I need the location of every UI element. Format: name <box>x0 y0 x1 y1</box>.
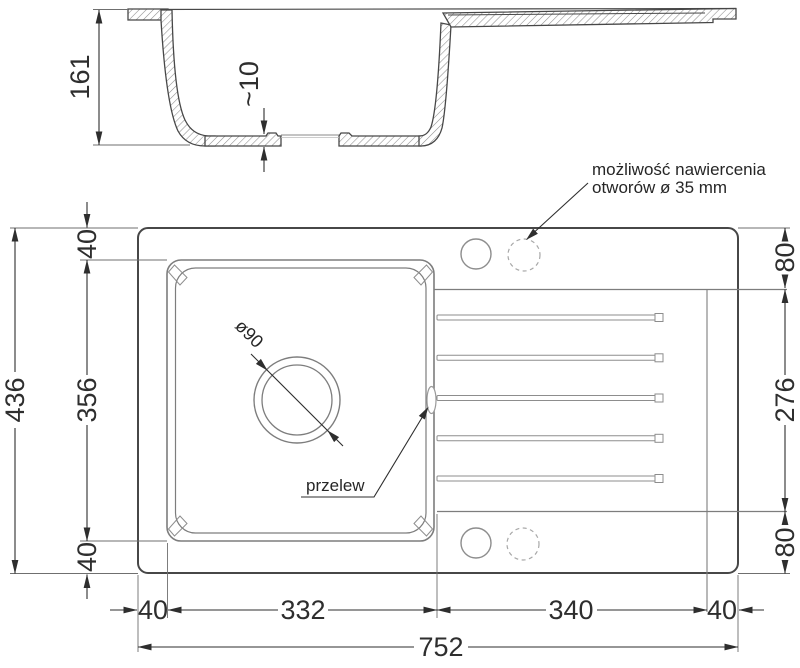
section-left-wall <box>161 10 215 146</box>
groove <box>437 315 658 320</box>
section-bottom-right <box>339 133 421 146</box>
groove-end-cap <box>655 475 663 483</box>
dim-label-right-40: 40 <box>707 595 737 625</box>
technical-drawing-page: 161 ~10 <box>0 0 800 668</box>
section-view: 161 ~10 <box>65 9 736 173</box>
dim-label-356: 356 <box>72 377 102 422</box>
dim-label-436: 436 <box>0 377 30 422</box>
note-line-2: otworów ø 35 mm <box>592 178 727 197</box>
dim-label-752: 752 <box>418 632 463 662</box>
dim-label-80-bottom: 80 <box>770 527 800 557</box>
dim-total-length: 752 <box>138 632 738 662</box>
note-line-1: możliwość nawiercenia <box>592 160 766 179</box>
dim-right-vertical: 80 276 80 <box>770 228 800 574</box>
sink-technical-drawing: 161 ~10 <box>0 0 800 668</box>
dim-label-161: 161 <box>65 54 95 99</box>
dim-label-bottom-40: 40 <box>72 542 102 572</box>
groove <box>437 396 658 401</box>
groove-end-cap <box>655 314 663 322</box>
dim-bowl-vertical: 40 356 40 <box>72 202 102 599</box>
dim-label-80-top: 80 <box>770 242 800 272</box>
section-right-wall <box>419 23 451 146</box>
dim-total-width: 436 <box>0 228 30 574</box>
dim-label-340: 340 <box>548 595 593 625</box>
groove-end-cap <box>655 394 663 402</box>
dim-label-top-40: 40 <box>72 229 102 259</box>
dim-label-10: ~10 <box>234 61 264 107</box>
dim-label-332: 332 <box>280 595 325 625</box>
section-drainer <box>443 9 736 28</box>
dim-label-left-40: 40 <box>138 595 168 625</box>
dim-bottom-thickness: ~10 <box>234 61 264 172</box>
groove-end-cap <box>655 354 663 362</box>
dim-label-276: 276 <box>770 377 800 422</box>
groove-end-cap <box>655 434 663 442</box>
overflow-label: przelew <box>306 476 365 495</box>
groove <box>437 355 658 360</box>
plan-view: ø90 przelew możliwość nawiercenia otworó… <box>0 160 800 662</box>
overflow-slot <box>427 387 436 414</box>
groove <box>437 476 658 481</box>
section-bottom-left <box>205 133 281 146</box>
groove <box>437 436 658 441</box>
